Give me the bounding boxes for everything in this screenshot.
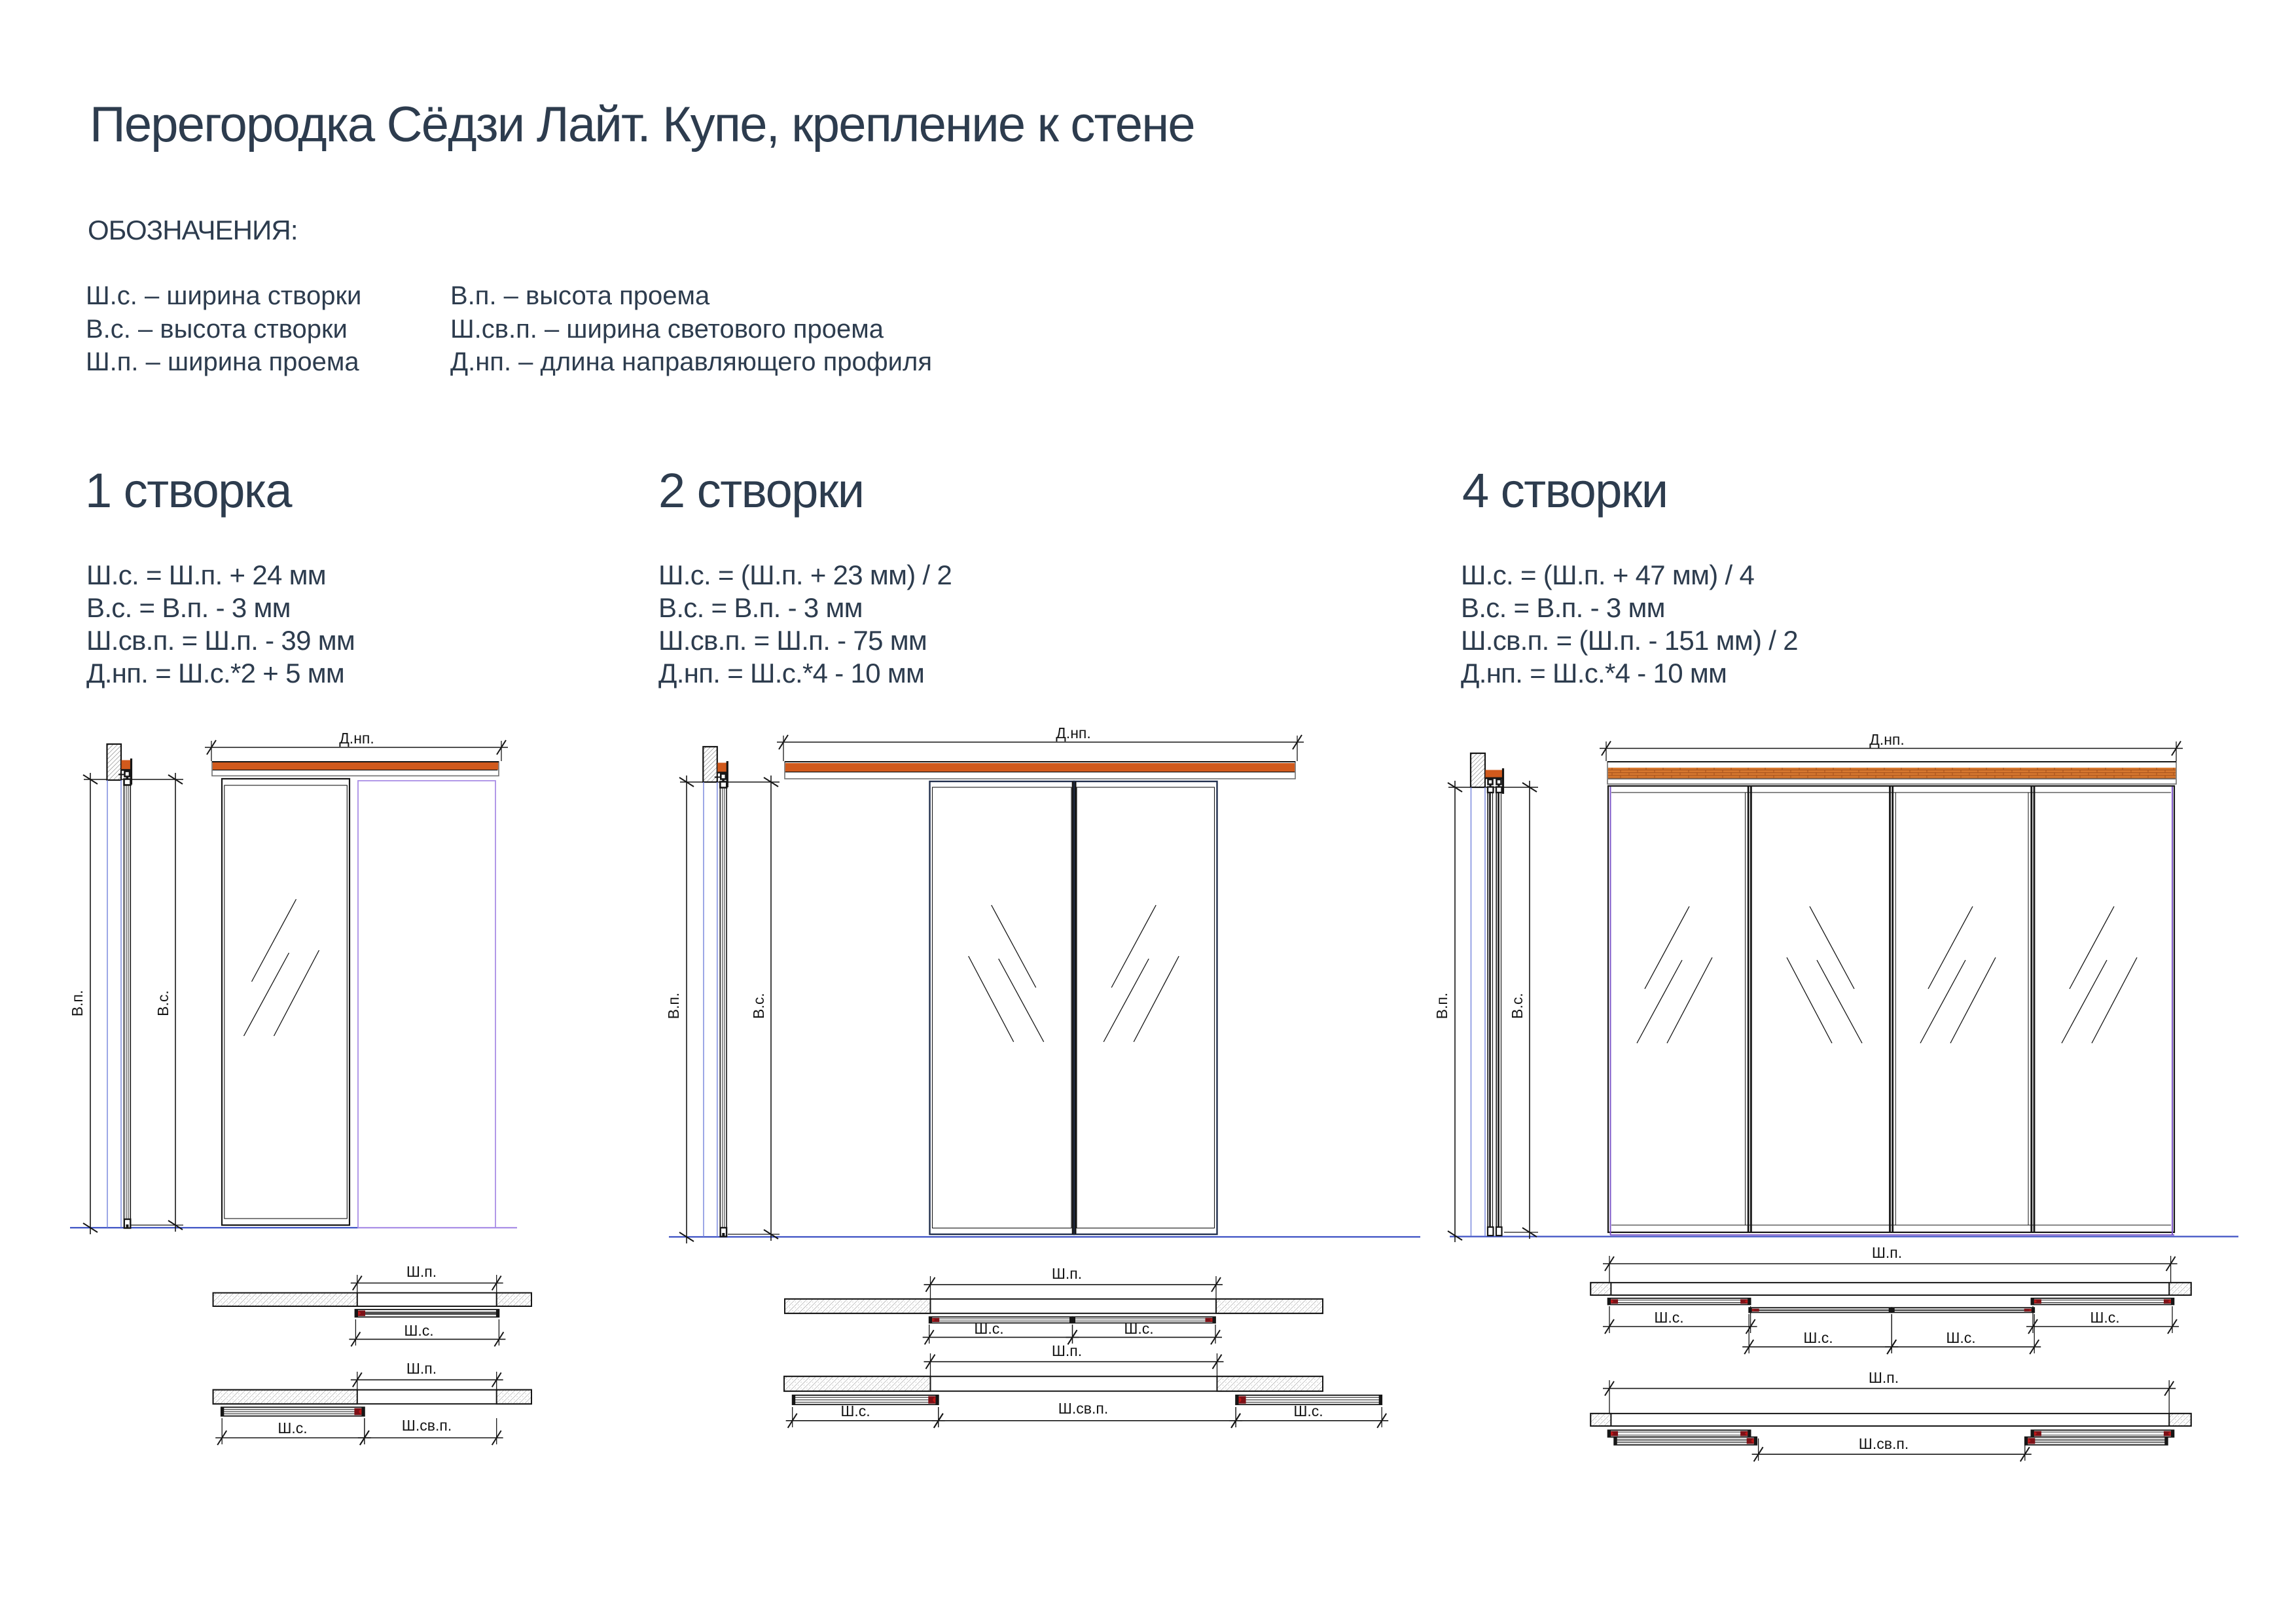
svg-text:Ш.св.п. = Ш.п. - 75 мм: Ш.св.п. = Ш.п. - 75 мм — [658, 625, 927, 656]
svg-text:Ш.с.: Ш.с. — [1124, 1320, 1153, 1337]
svg-text:Ш.п. – ширина проема: Ш.п. – ширина проема — [86, 348, 359, 376]
svg-text:В.п.: В.п. — [1433, 993, 1450, 1020]
svg-text:Перегородка Сёдзи Лайт. Купе,: Перегородка Сёдзи Лайт. Купе, крепление … — [90, 97, 1194, 152]
svg-text:Ш.с. – ширина створки: Ш.с. – ширина створки — [86, 281, 361, 310]
svg-text:Ш.с.: Ш.с. — [1654, 1309, 1683, 1326]
svg-text:Ш.св.п.: Ш.св.п. — [402, 1417, 452, 1434]
svg-text:В.с. = В.п. - 3 мм: В.с. = В.п. - 3 мм — [658, 592, 863, 623]
svg-text:В.с. – высота створки: В.с. – высота створки — [86, 315, 348, 344]
svg-text:Ш.п.: Ш.п. — [1052, 1265, 1082, 1282]
svg-text:Ш.с. = Ш.п. + 24 мм: Ш.с. = Ш.п. + 24 мм — [86, 560, 326, 590]
svg-text:В.п.: В.п. — [665, 993, 682, 1020]
svg-text:Д.нп.: Д.нп. — [1869, 731, 1905, 748]
svg-text:Ш.п.: Ш.п. — [1869, 1369, 1899, 1386]
svg-text:Д.нп. = Ш.с.*2 + 5 мм: Д.нп. = Ш.с.*2 + 5 мм — [86, 658, 344, 688]
svg-text:Ш.с.: Ш.с. — [404, 1322, 433, 1339]
svg-text:Ш.п.: Ш.п. — [406, 1263, 437, 1280]
svg-text:Ш.с.: Ш.с. — [2090, 1309, 2119, 1326]
svg-text:Ш.с.: Ш.с. — [840, 1402, 870, 1419]
svg-text:Д.нп. – длина направляющего пр: Д.нп. – длина направляющего профиля — [450, 348, 932, 376]
svg-text:В.п. – высота проема: В.п. – высота проема — [450, 281, 710, 310]
svg-text:В.с. = В.п. - 3 мм: В.с. = В.п. - 3 мм — [1461, 592, 1665, 623]
svg-text:Ш.с. = (Ш.п. + 23 мм) / 2: Ш.с. = (Ш.п. + 23 мм) / 2 — [658, 560, 952, 590]
svg-text:Ш.св.п. = Ш.п. - 39 мм: Ш.св.п. = Ш.п. - 39 мм — [86, 625, 355, 656]
svg-text:Д.нп.: Д.нп. — [1056, 724, 1091, 741]
svg-text:В.с.: В.с. — [750, 993, 767, 1019]
svg-text:Ш.с.: Ш.с. — [974, 1320, 1003, 1337]
svg-text:2 створки: 2 створки — [658, 463, 864, 518]
svg-text:Ш.св.п.: Ш.св.п. — [1859, 1435, 1909, 1452]
svg-text:В.п.: В.п. — [69, 990, 86, 1017]
svg-text:В.с.: В.с. — [1509, 993, 1526, 1019]
svg-text:Ш.с.: Ш.с. — [1946, 1329, 1975, 1346]
svg-text:Ш.св.п. = (Ш.п. - 151 мм) / 2: Ш.св.п. = (Ш.п. - 151 мм) / 2 — [1461, 625, 1798, 656]
svg-text:Д.нп. = Ш.с.*4 - 10 мм: Д.нп. = Ш.с.*4 - 10 мм — [658, 658, 924, 688]
svg-text:В.с. = В.п. - 3 мм: В.с. = В.п. - 3 мм — [86, 592, 291, 623]
svg-text:Д.нп. = Ш.с.*4 - 10 мм: Д.нп. = Ш.с.*4 - 10 мм — [1461, 658, 1727, 688]
svg-text:Ш.с.: Ш.с. — [1803, 1329, 1833, 1346]
svg-text:Д.нп.: Д.нп. — [339, 730, 374, 747]
svg-text:В.с.: В.с. — [154, 990, 171, 1016]
svg-text:Ш.с.: Ш.с. — [1293, 1402, 1323, 1419]
svg-text:Ш.св.п.: Ш.св.п. — [1058, 1400, 1108, 1417]
svg-text:ОБОЗНАЧЕНИЯ:: ОБОЗНАЧЕНИЯ: — [88, 215, 298, 245]
svg-text:Ш.п.: Ш.п. — [1052, 1342, 1082, 1359]
svg-text:4 створки: 4 створки — [1462, 463, 1668, 518]
svg-text:Ш.св.п. – ширина светового про: Ш.св.п. – ширина светового проема — [450, 315, 884, 344]
svg-text:Ш.с.: Ш.с. — [278, 1419, 307, 1436]
svg-text:1 створка: 1 створка — [85, 463, 293, 518]
svg-text:Ш.с. = (Ш.п. + 47 мм) / 4: Ш.с. = (Ш.п. + 47 мм) / 4 — [1461, 560, 1754, 590]
svg-text:Ш.п.: Ш.п. — [406, 1360, 437, 1377]
svg-text:Ш.п.: Ш.п. — [1872, 1244, 1902, 1261]
